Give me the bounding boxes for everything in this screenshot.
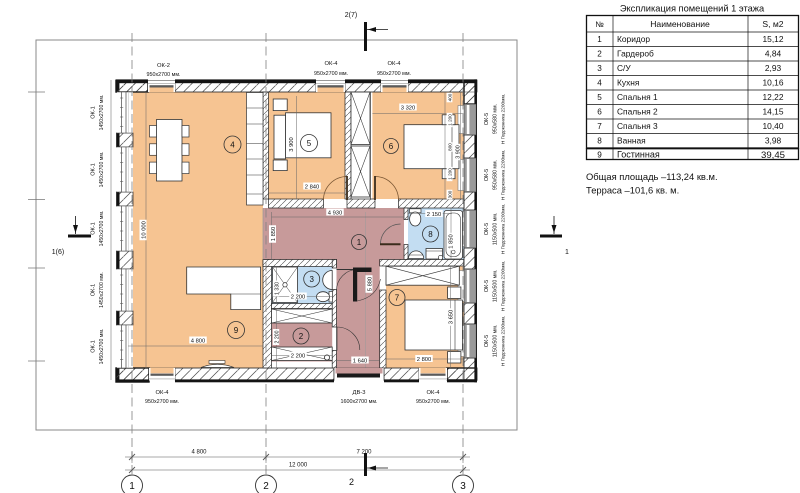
- svg-text:9: 9: [597, 151, 602, 160]
- svg-text:4: 4: [230, 140, 235, 149]
- svg-text:Наименование: Наименование: [650, 19, 710, 29]
- svg-text:5: 5: [307, 139, 312, 148]
- svg-text:Спальня 1: Спальня 1: [617, 92, 658, 102]
- svg-text:3 900: 3 900: [455, 145, 461, 159]
- svg-text:Экспликация помещений 1 этажа: Экспликация помещений 1 этажа: [620, 4, 765, 14]
- svg-text:№: №: [595, 20, 604, 29]
- svg-text:39,45: 39,45: [761, 150, 785, 161]
- svg-text:S, м2: S, м2: [762, 19, 783, 29]
- svg-text:1450х2700 мм.: 1450х2700 мм.: [99, 95, 105, 131]
- svg-text:10,16: 10,16: [763, 78, 784, 88]
- svg-text:2: 2: [349, 477, 354, 487]
- svg-text:950х580 мм.: 950х580 мм.: [493, 160, 499, 190]
- svg-text:2 150: 2 150: [427, 212, 442, 218]
- svg-text:Гостинная: Гостинная: [617, 150, 660, 160]
- svg-text:1: 1: [597, 35, 602, 44]
- svg-text:2(7): 2(7): [345, 12, 357, 19]
- svg-text:300: 300: [448, 190, 453, 198]
- svg-text:ОК-1: ОК-1: [91, 222, 97, 235]
- svg-text:6: 6: [389, 142, 394, 151]
- svg-text:4 930: 4 930: [328, 211, 343, 217]
- svg-text:5: 5: [597, 93, 602, 102]
- svg-text:10,40: 10,40: [763, 121, 784, 131]
- svg-text:14,15: 14,15: [763, 107, 784, 117]
- svg-text:Спальня 2: Спальня 2: [617, 107, 658, 117]
- svg-text:2 200: 2 200: [291, 354, 306, 360]
- svg-text:ОК-1: ОК-1: [91, 163, 97, 176]
- svg-text:1 200: 1 200: [448, 114, 453, 126]
- svg-text:3,98: 3,98: [765, 136, 782, 146]
- svg-text:ДВ-3: ДВ-3: [353, 390, 366, 396]
- svg-text:Коридор: Коридор: [617, 34, 650, 44]
- svg-text:ОК-5: ОК-5: [484, 280, 490, 293]
- svg-text:Гардероб: Гардероб: [617, 49, 654, 59]
- svg-text:1150х500 мм.: 1150х500 мм.: [493, 270, 499, 302]
- svg-text:2 200: 2 200: [291, 295, 306, 301]
- svg-text:1: 1: [129, 481, 135, 492]
- svg-text:12,22: 12,22: [763, 92, 784, 102]
- svg-text:12 000: 12 000: [289, 463, 308, 469]
- svg-text:1 850: 1 850: [449, 234, 455, 249]
- svg-text:ОК-1: ОК-1: [91, 340, 97, 353]
- svg-text:ОК-1: ОК-1: [91, 284, 97, 297]
- svg-text:950х2700 мм.: 950х2700 мм.: [377, 71, 411, 77]
- svg-text:1 200: 1 200: [448, 168, 453, 180]
- svg-text:950х580 мм.: 950х580 мм.: [493, 104, 499, 134]
- svg-text:ОК-4: ОК-4: [155, 390, 169, 396]
- svg-text:4 800: 4 800: [191, 339, 206, 345]
- svg-text:ОК-5: ОК-5: [484, 223, 490, 236]
- svg-text:10 000: 10 000: [142, 221, 148, 239]
- svg-text:ОК-5: ОК-5: [484, 335, 490, 348]
- svg-text:С/У: С/У: [617, 63, 631, 73]
- svg-text:2 200: 2 200: [274, 330, 280, 343]
- svg-text:2 800: 2 800: [417, 357, 432, 363]
- svg-text:ОК-4: ОК-4: [426, 390, 440, 396]
- svg-text:950х2700 мм.: 950х2700 мм.: [314, 71, 348, 77]
- svg-text:15,12: 15,12: [763, 34, 784, 44]
- svg-text:950х2700 мм.: 950х2700 мм.: [146, 72, 180, 78]
- svg-text:1: 1: [565, 249, 569, 256]
- svg-text:1450х2700 мм.: 1450х2700 мм.: [99, 272, 105, 308]
- svg-text:2: 2: [299, 332, 304, 341]
- svg-text:4 800: 4 800: [191, 450, 207, 456]
- svg-text:ОК-4: ОК-4: [324, 61, 338, 67]
- svg-text:7: 7: [597, 122, 602, 131]
- svg-text:ОК-5: ОК-5: [484, 169, 490, 182]
- svg-text:1: 1: [357, 238, 362, 247]
- svg-text:3: 3: [597, 64, 602, 73]
- svg-text:1600х2700 мм.: 1600х2700 мм.: [340, 399, 377, 405]
- svg-text:3: 3: [309, 275, 314, 284]
- svg-text:Ванная: Ванная: [617, 136, 646, 146]
- svg-text:5 880: 5 880: [368, 277, 374, 292]
- svg-text:3 900: 3 900: [289, 137, 295, 152]
- svg-text:ОК-1: ОК-1: [91, 106, 97, 119]
- svg-text:3: 3: [460, 481, 466, 492]
- svg-text:Спальня 3: Спальня 3: [617, 121, 658, 131]
- svg-text:3 320: 3 320: [401, 106, 416, 112]
- svg-text:8: 8: [428, 230, 433, 239]
- svg-text:6: 6: [597, 108, 602, 117]
- svg-text:1 330: 1 330: [274, 282, 280, 295]
- svg-text:7: 7: [395, 293, 400, 302]
- svg-text:800: 800: [448, 143, 453, 151]
- svg-text:1450х2700 мм.: 1450х2700 мм.: [99, 211, 105, 247]
- svg-text:1150х500 мм.: 1150х500 мм.: [493, 213, 499, 245]
- svg-text:9: 9: [234, 326, 239, 335]
- svg-text:3 650: 3 650: [449, 310, 455, 325]
- svg-text:ОК-4: ОК-4: [387, 61, 401, 67]
- svg-text:950х2700 мм.: 950х2700 мм.: [145, 399, 179, 405]
- svg-text:400: 400: [448, 93, 453, 101]
- svg-text:Общая площадь –113,24 кв.м.: Общая площадь –113,24 кв.м.: [586, 171, 718, 182]
- svg-text:ОК-2: ОК-2: [157, 63, 170, 69]
- svg-text:Кухня: Кухня: [617, 78, 639, 88]
- svg-text:ОК-5: ОК-5: [484, 113, 490, 126]
- svg-text:1150х500 мм.: 1150х500 мм.: [493, 325, 499, 357]
- svg-text:1450х2700 мм.: 1450х2700 мм.: [99, 152, 105, 188]
- svg-text:Терраса –101,6 кв. м.: Терраса –101,6 кв. м.: [586, 185, 679, 196]
- svg-text:2: 2: [263, 481, 269, 492]
- svg-text:2,93: 2,93: [765, 63, 782, 73]
- svg-text:950х2700 мм.: 950х2700 мм.: [416, 399, 450, 405]
- svg-text:2: 2: [597, 50, 602, 59]
- svg-text:1 640: 1 640: [353, 359, 368, 365]
- svg-text:1 850: 1 850: [271, 227, 277, 242]
- svg-text:1(6): 1(6): [52, 249, 64, 256]
- svg-text:4: 4: [597, 79, 602, 88]
- svg-text:4,84: 4,84: [765, 49, 782, 59]
- svg-text:1450х2700 мм.: 1450х2700 мм.: [99, 329, 105, 365]
- svg-text:2 840: 2 840: [305, 185, 320, 191]
- svg-text:8: 8: [597, 137, 602, 146]
